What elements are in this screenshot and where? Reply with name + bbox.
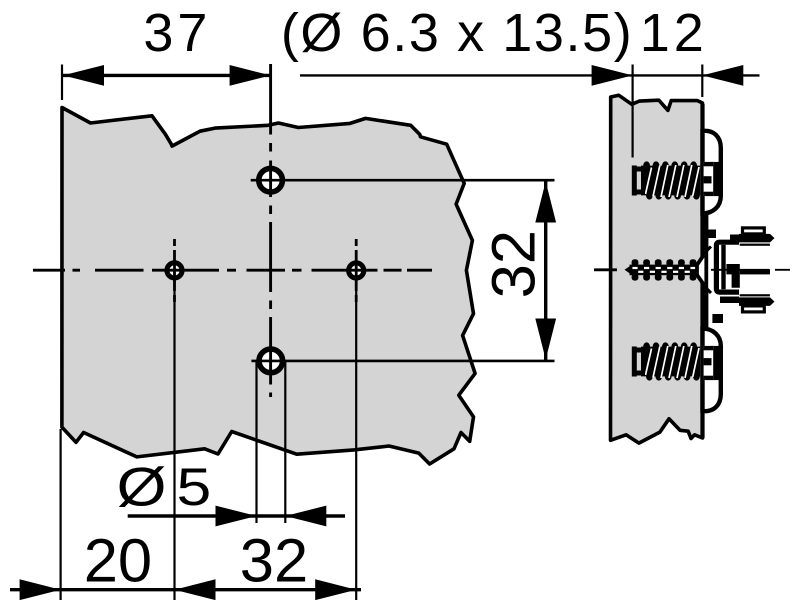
svg-text:37: 37 bbox=[143, 3, 211, 63]
svg-text:(Ø 6.3 x 13.5): (Ø 6.3 x 13.5) bbox=[281, 3, 634, 63]
svg-text:5: 5 bbox=[177, 458, 212, 517]
svg-text:20: 20 bbox=[84, 527, 152, 596]
svg-text:Ø: Ø bbox=[117, 456, 167, 518]
svg-text:32: 32 bbox=[240, 527, 308, 596]
svg-text:32: 32 bbox=[480, 230, 549, 298]
svg-text:12: 12 bbox=[640, 3, 708, 63]
